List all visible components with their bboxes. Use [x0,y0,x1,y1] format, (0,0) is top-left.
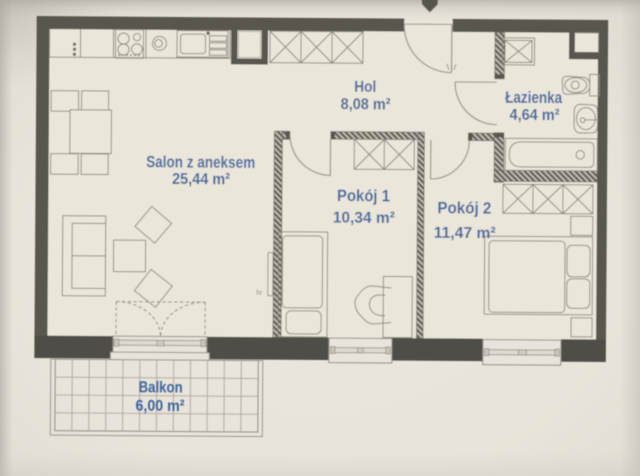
svg-text:Pokój 2: Pokój 2 [437,198,491,217]
svg-text:Balkon: Balkon [139,379,183,396]
svg-text:Pokój 1: Pokój 1 [337,186,390,205]
svg-text:10,34 m²: 10,34 m² [333,210,395,227]
svg-text:Łazienka: Łazienka [505,88,563,107]
svg-text:4,64 m²: 4,64 m² [509,107,559,124]
svg-text:8,08 m²: 8,08 m² [341,96,391,113]
svg-text:tv: tv [256,288,262,297]
svg-text:6,00 m²: 6,00 m² [135,398,184,415]
svg-text:25,44 m²: 25,44 m² [172,171,230,188]
svg-text:Salon z aneksem: Salon z aneksem [146,152,255,172]
svg-text:Hol: Hol [354,79,376,96]
svg-text:11,47 m²: 11,47 m² [434,225,496,242]
